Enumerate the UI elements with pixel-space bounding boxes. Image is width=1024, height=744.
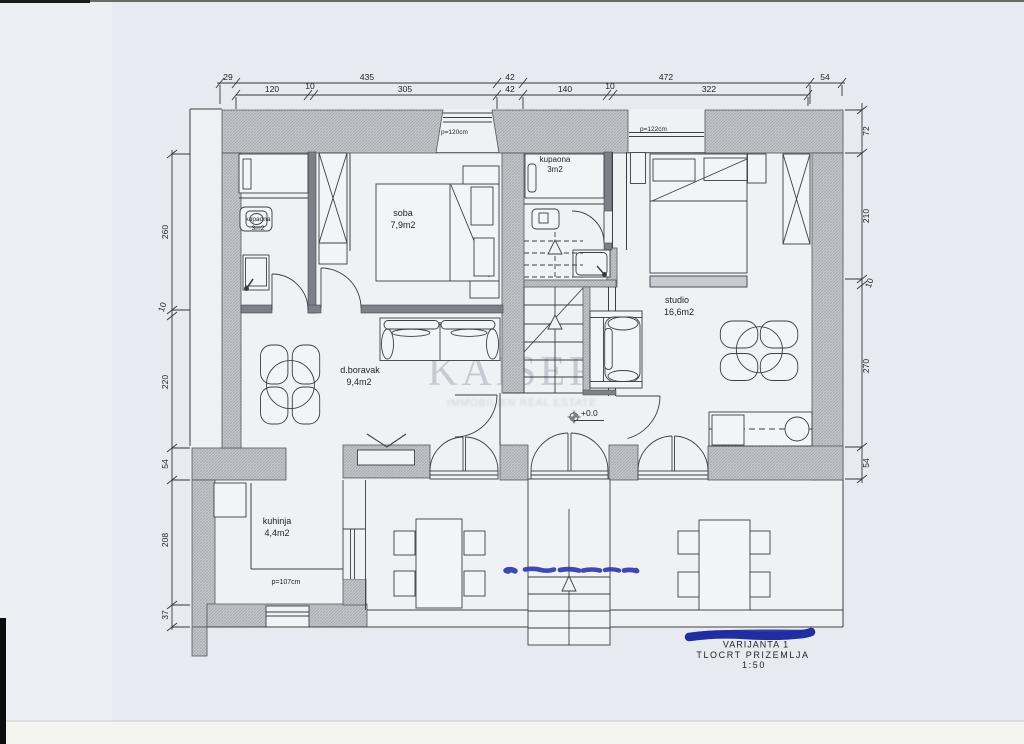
svg-text:37: 37 xyxy=(160,610,170,620)
svg-text:10: 10 xyxy=(305,81,315,91)
svg-text:220: 220 xyxy=(160,375,170,389)
svg-text:VARIJANTA 1: VARIJANTA 1 xyxy=(723,640,789,650)
svg-text:9,4m2: 9,4m2 xyxy=(346,377,371,387)
svg-text:p=120cm: p=120cm xyxy=(441,129,468,136)
svg-text:322: 322 xyxy=(702,84,716,94)
svg-text:p=107cm: p=107cm xyxy=(272,579,301,586)
svg-text:120: 120 xyxy=(265,84,279,94)
svg-text:42: 42 xyxy=(505,72,515,82)
svg-text:16,6m2: 16,6m2 xyxy=(664,307,694,317)
svg-text:kupaona: kupaona xyxy=(246,216,271,223)
svg-text:kupaona: kupaona xyxy=(540,155,571,164)
svg-text:270: 270 xyxy=(861,359,871,373)
svg-text:42: 42 xyxy=(505,84,515,94)
svg-text:+0.0: +0.0 xyxy=(581,408,598,418)
svg-text:3m2: 3m2 xyxy=(547,165,563,174)
svg-text:3m2: 3m2 xyxy=(252,225,265,232)
svg-text:4,4m2: 4,4m2 xyxy=(264,528,289,538)
svg-text:54: 54 xyxy=(861,458,871,468)
svg-text:305: 305 xyxy=(398,84,412,94)
svg-text:54: 54 xyxy=(820,72,830,82)
svg-text:72: 72 xyxy=(861,126,871,136)
svg-text:1:50: 1:50 xyxy=(742,660,766,670)
svg-text:studio: studio xyxy=(665,295,689,305)
svg-text:260: 260 xyxy=(160,225,170,239)
svg-text:210: 210 xyxy=(861,209,871,223)
svg-text:10: 10 xyxy=(605,81,615,91)
svg-text:29: 29 xyxy=(223,72,233,82)
svg-text:soba: soba xyxy=(393,208,413,218)
svg-text:TLOCRT PRIZEMLJA: TLOCRT PRIZEMLJA xyxy=(696,650,809,660)
svg-text:7,9m2: 7,9m2 xyxy=(390,220,415,230)
svg-text:435: 435 xyxy=(360,72,374,82)
svg-text:IMMOBILIEN REAL ESTATE: IMMOBILIEN REAL ESTATE xyxy=(447,397,596,409)
svg-text:kuhinja: kuhinja xyxy=(263,516,292,526)
svg-text:208: 208 xyxy=(160,533,170,547)
svg-text:p=122cm: p=122cm xyxy=(640,126,667,133)
svg-text:54: 54 xyxy=(160,459,170,469)
svg-text:140: 140 xyxy=(558,84,572,94)
svg-text:472: 472 xyxy=(659,72,673,82)
svg-text:d.boravak: d.boravak xyxy=(340,365,380,375)
